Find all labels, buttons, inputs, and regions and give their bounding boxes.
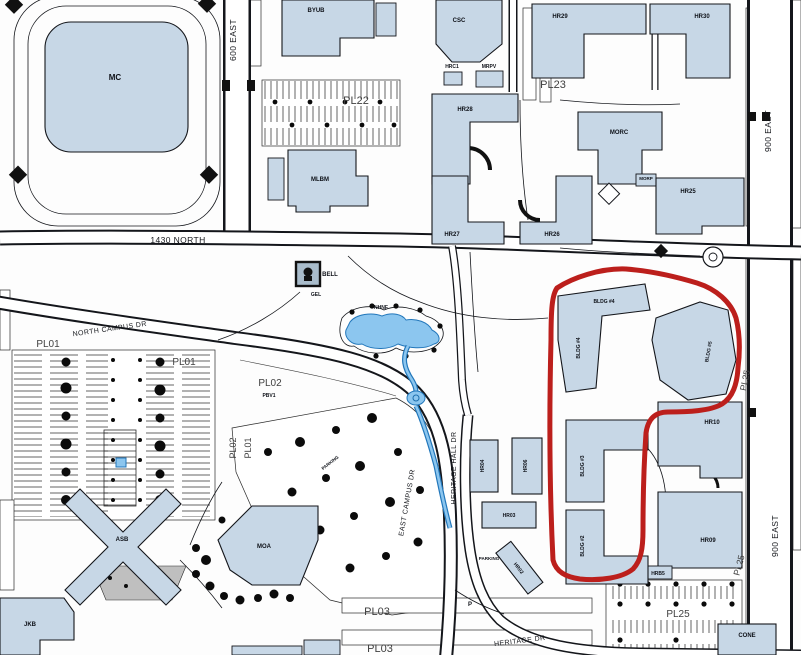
building-hr27: [432, 176, 504, 244]
building-jkb: [0, 598, 74, 655]
label-csc: CSC: [453, 18, 466, 24]
label-hr29: HR29: [552, 14, 568, 20]
label-hr09: HR09: [700, 538, 716, 544]
campus-map-svg: MC BYUB MLBM CSC HRC1 MRPV HR28 HR27 HR2…: [0, 0, 801, 655]
building-mc: [45, 22, 188, 152]
parking-pl01-a: PL01: [36, 339, 60, 350]
pond: [346, 314, 439, 349]
parking-pl03-a: PL03: [364, 606, 390, 618]
street-900-east-top: 900 EAST: [763, 110, 773, 152]
label-bell: BELL: [322, 272, 338, 278]
label-cone: CONE: [738, 633, 755, 639]
parking-pl23: PL23: [540, 79, 566, 91]
label-hr27: HR27: [444, 232, 460, 238]
label-asb: ASB: [116, 537, 129, 543]
label-mc: MC: [109, 73, 122, 82]
label-hrb5: HRB5: [651, 571, 665, 577]
building-hr29: [532, 4, 646, 78]
building-byub: [282, 0, 374, 56]
building-bldg5: [652, 302, 736, 400]
parking-pl01-b: PL01: [172, 357, 196, 368]
label-hr25: HR25: [680, 189, 696, 195]
label-byub: BYUB: [307, 8, 325, 14]
parking-pl03-b: PL03: [367, 643, 393, 655]
label-hr03: HR03: [503, 513, 516, 519]
small-pond: [407, 391, 425, 405]
building-hr28: [432, 94, 518, 184]
parking-label-b: PARKING: [479, 556, 500, 561]
building-hr30: [650, 4, 730, 78]
street-600-east: 600 EAST: [228, 19, 238, 61]
label-hr28: HR28: [457, 107, 473, 113]
street-900-east-bottom: 900 EAST: [770, 515, 780, 557]
label-hr10: HR10: [704, 420, 720, 426]
label-mrpv: MRPV: [482, 64, 497, 70]
label-gel: GEL: [311, 292, 321, 298]
parking-pl01-v: PL01: [243, 437, 253, 458]
building-bldg2: [566, 510, 648, 584]
label-bldg2: BLDG #2: [580, 535, 586, 556]
label-mlbm: MLBM: [311, 177, 329, 183]
parking-pl25-h: PL25: [666, 609, 690, 620]
campus-map: MC BYUB MLBM CSC HRC1 MRPV HR28 HR27 HR2…: [0, 0, 801, 655]
building-hr09: [658, 492, 742, 568]
building-hr25: [656, 178, 744, 234]
label-hr30: HR30: [694, 14, 710, 20]
building-cone: [718, 624, 776, 655]
street-heritage-hall-dr: HERITAGE HALL DR: [451, 432, 458, 505]
parking-pl02: PL02: [258, 378, 282, 389]
label-moa: MOA: [257, 544, 272, 550]
label-bldg4-top: BLDG #4: [593, 299, 614, 305]
label-hr04: HR04: [480, 459, 486, 472]
label-morp: MORP: [639, 176, 653, 181]
label-jkb: JKB: [24, 622, 37, 628]
parking-pl22: PL22: [343, 95, 369, 107]
parking-pbv1: PBV1: [262, 393, 275, 399]
street-1430-north: 1430 NORTH: [150, 235, 205, 245]
building-mrpv: [476, 71, 503, 87]
parking-label-p: P: [468, 602, 472, 608]
building-csc: [436, 0, 502, 62]
label-morc: MORC: [610, 130, 629, 136]
parking-pl02-v: PL02: [228, 437, 238, 458]
building-byub-annex: [376, 3, 396, 36]
building-bldg3: [566, 420, 648, 502]
label-hrc1: HRC1: [445, 64, 459, 70]
label-nhnf: NHNF: [374, 305, 388, 311]
label-bldg3: BLDG #3: [580, 455, 586, 476]
building-morc: [578, 112, 662, 184]
label-hr26: HR26: [544, 232, 560, 238]
label-bldg4-side: BLDG #4: [576, 337, 582, 358]
label-hr06: HR06: [523, 459, 529, 472]
building-hrc1: [444, 72, 462, 85]
